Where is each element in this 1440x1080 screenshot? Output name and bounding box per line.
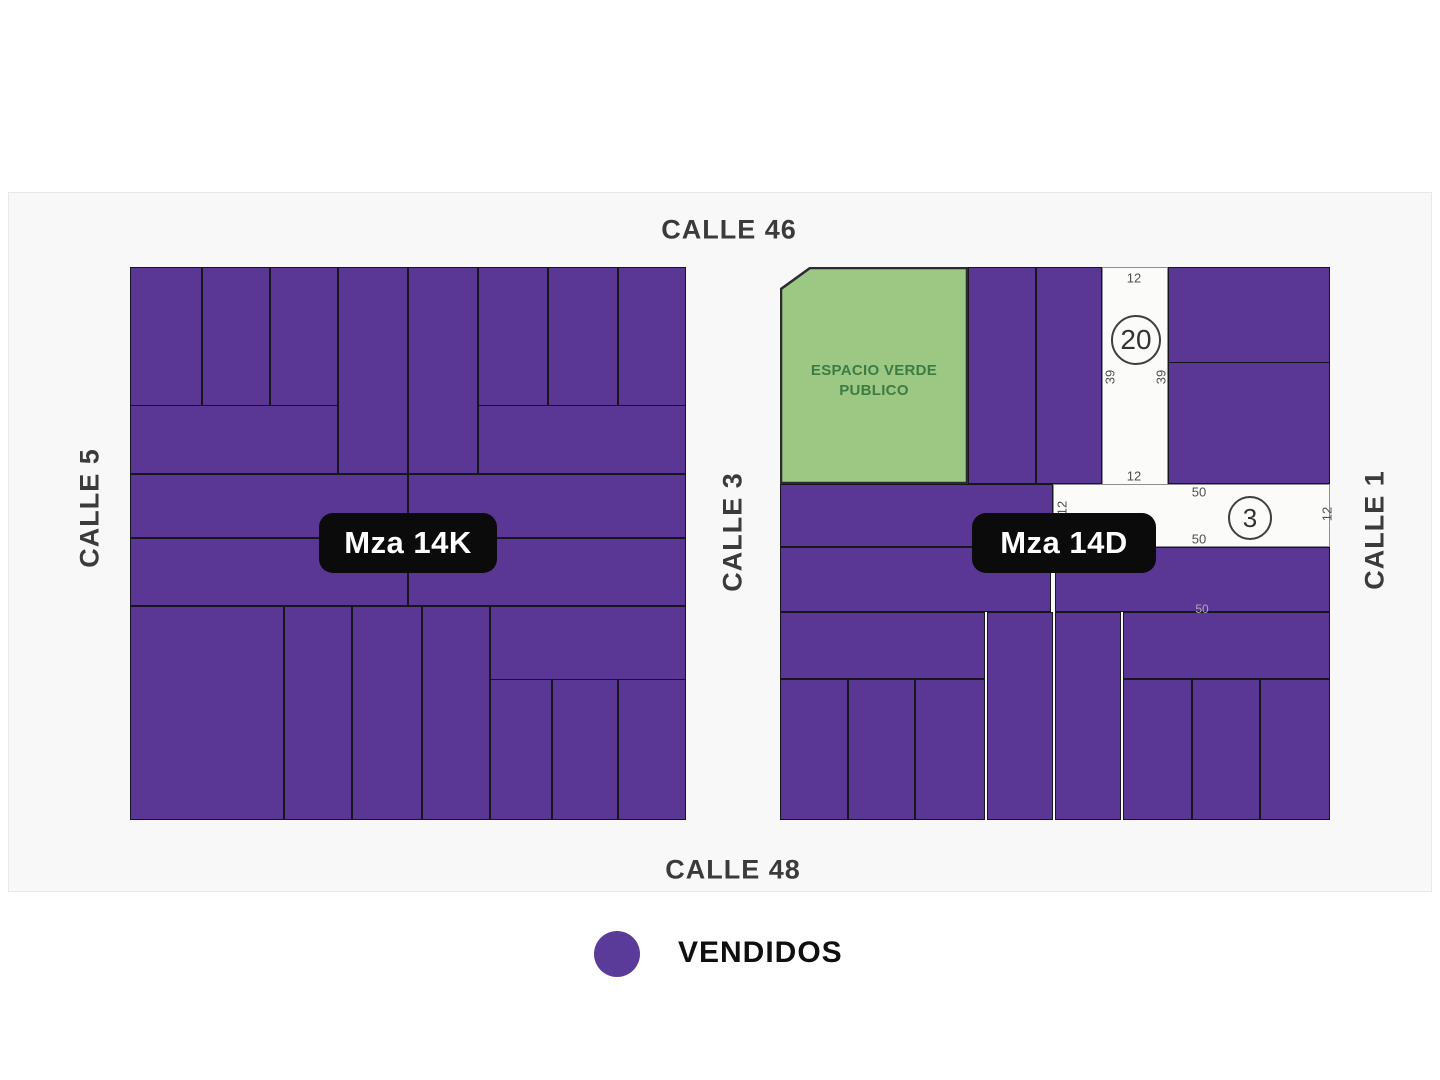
lot-3-number: 3 <box>1228 496 1272 540</box>
sold-lot-mza-14k[interactable] <box>130 405 338 474</box>
faint-dimension: 50 <box>1195 602 1208 616</box>
sold-lot-mza-14d[interactable] <box>848 679 915 820</box>
lot-20-dimension: 12 <box>1127 271 1141 286</box>
sold-lot-mza-14k[interactable] <box>618 679 686 820</box>
sold-lot-mza-14k[interactable] <box>490 606 686 680</box>
sold-lot-mza-14k[interactable] <box>270 267 338 406</box>
sold-lot-mza-14d[interactable] <box>1123 612 1330 679</box>
sold-lot-mza-14d[interactable] <box>780 679 848 820</box>
legend-sold-label: VENDIDOS <box>678 936 843 970</box>
sold-lot-mza-14d[interactable] <box>1055 612 1121 820</box>
sold-lot-mza-14k[interactable] <box>478 267 548 406</box>
sold-lot-mza-14d[interactable] <box>915 679 985 820</box>
sold-lot-mza-14d[interactable] <box>780 612 985 679</box>
sold-lot-mza-14k[interactable] <box>130 267 202 406</box>
sold-lot-mza-14k[interactable] <box>478 405 686 474</box>
sold-lot-mza-14d[interactable] <box>1168 362 1330 484</box>
sold-lot-mza-14d[interactable] <box>987 612 1053 820</box>
legend-sold-dot <box>594 931 640 977</box>
street-label-calle-5: CALLE 5 <box>75 448 106 568</box>
lot-20-dimension: 12 <box>1127 469 1141 484</box>
sold-lot-mza-14k[interactable] <box>284 606 352 820</box>
sold-lot-mza-14k[interactable] <box>338 267 408 474</box>
sold-lot-mza-14d[interactable] <box>1036 267 1102 484</box>
street-label-calle-46: CALLE 46 <box>661 215 797 246</box>
sold-lot-mza-14k[interactable] <box>490 679 552 820</box>
lot-20-dimension: 39 <box>1154 370 1169 384</box>
street-label-calle-48: CALLE 48 <box>665 855 801 886</box>
lot-20-dimension: 39 <box>1103 370 1118 384</box>
sold-lot-mza-14d[interactable] <box>1192 679 1260 820</box>
street-label-calle-1: CALLE 1 <box>1360 470 1391 590</box>
mza-14d-label-pill: Mza 14D <box>972 513 1156 573</box>
sold-lot-mza-14k[interactable] <box>618 267 686 406</box>
lot-20-number: 20 <box>1111 315 1161 365</box>
sold-lot-mza-14k[interactable] <box>548 267 618 406</box>
sold-lot-mza-14k[interactable] <box>130 606 284 820</box>
lot-3-dimension: 50 <box>1192 485 1206 500</box>
lot-3-dimension: 12 <box>1320 507 1335 521</box>
lot-3-dimension: 50 <box>1192 532 1206 547</box>
sold-lot-mza-14d[interactable] <box>1168 267 1330 363</box>
sold-lot-mza-14d[interactable] <box>968 267 1036 484</box>
street-label-calle-3: CALLE 3 <box>718 472 749 592</box>
espacio-verde-label: ESPACIO VERDEPUBLICO <box>811 361 937 401</box>
sold-lot-mza-14k[interactable] <box>422 606 490 820</box>
mza-14k-label-pill: Mza 14K <box>319 513 497 573</box>
sold-lot-mza-14k[interactable] <box>352 606 422 820</box>
sold-lot-mza-14k[interactable] <box>202 267 270 406</box>
lot-map-canvas: VENDIDOS ESPACIO VERDEPUBLICO12393912205… <box>0 0 1440 1080</box>
sold-lot-mza-14d[interactable] <box>1260 679 1330 820</box>
sold-lot-mza-14k[interactable] <box>552 679 618 820</box>
sold-lot-mza-14k[interactable] <box>408 267 478 474</box>
sold-lot-mza-14d[interactable] <box>1123 679 1192 820</box>
